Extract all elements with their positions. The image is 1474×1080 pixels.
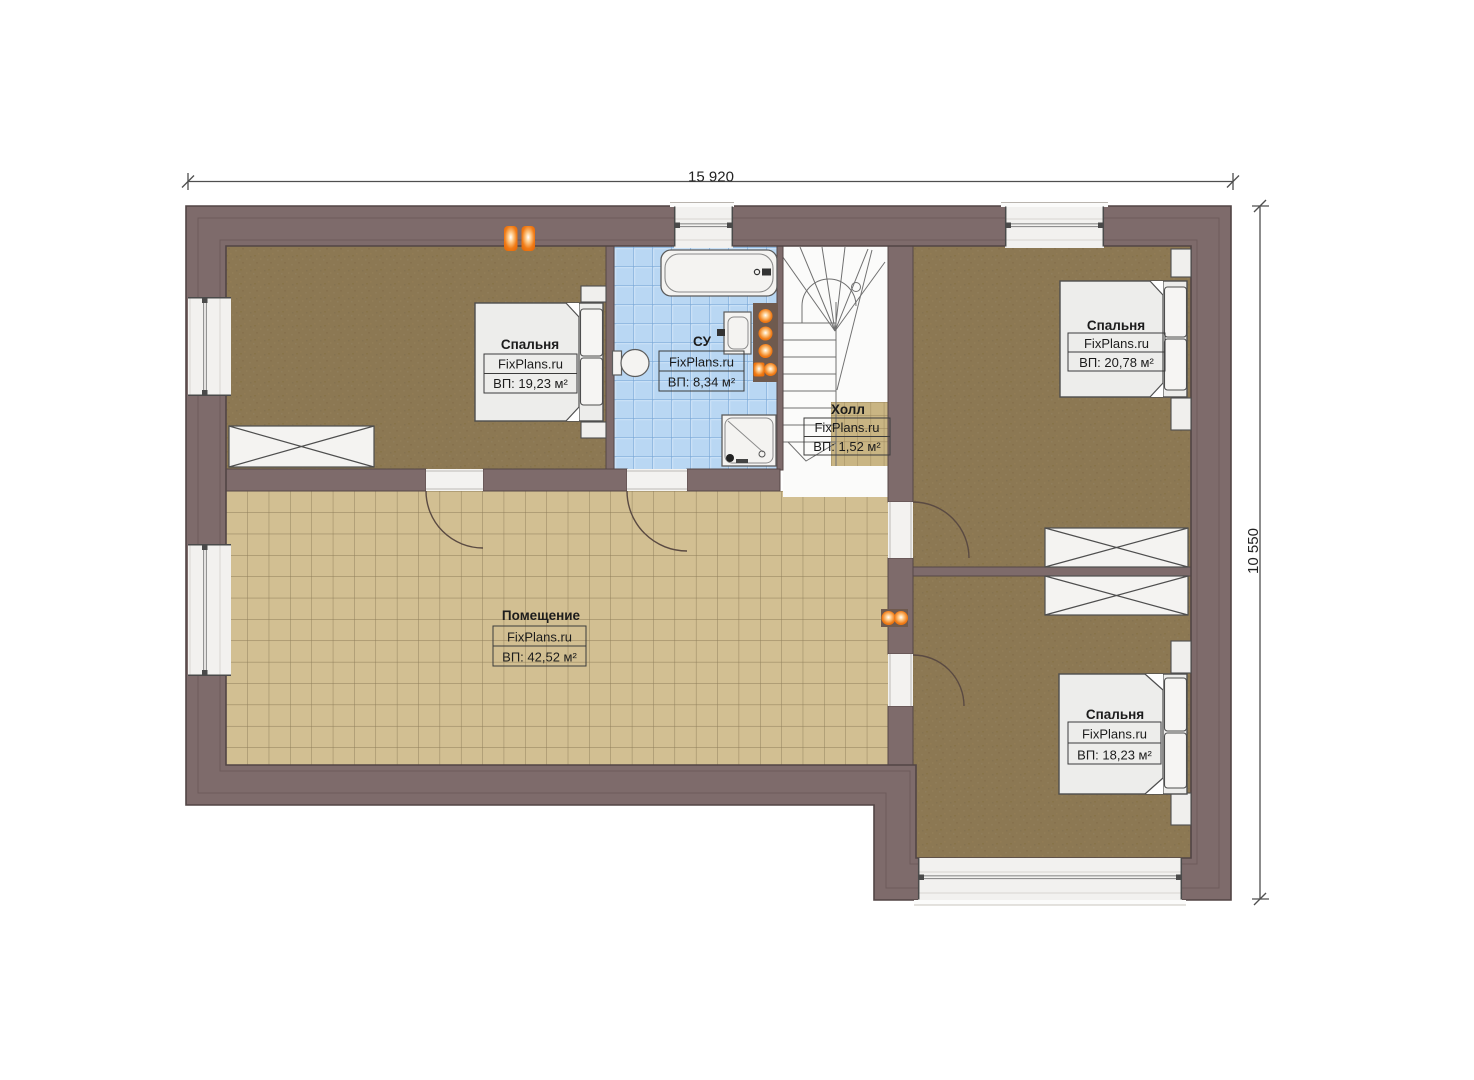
svg-text:Спальня: Спальня: [1086, 707, 1144, 722]
svg-text:15 920: 15 920: [688, 169, 734, 186]
svg-text:Холл: Холл: [831, 402, 865, 417]
svg-text:ВП: 20,78 м²: ВП: 20,78 м²: [1079, 355, 1154, 370]
svg-text:FixPlans.ru: FixPlans.ru: [669, 355, 734, 370]
svg-text:Помещение: Помещение: [502, 608, 581, 623]
svg-text:FixPlans.ru: FixPlans.ru: [1084, 336, 1149, 351]
svg-text:ВП: 18,23 м²: ВП: 18,23 м²: [1077, 748, 1152, 763]
svg-text:FixPlans.ru: FixPlans.ru: [507, 630, 572, 645]
svg-text:10 550: 10 550: [1245, 528, 1262, 574]
svg-text:ВП: 1,52 м²: ВП: 1,52 м²: [813, 439, 881, 454]
svg-text:СУ: СУ: [693, 334, 712, 349]
svg-text:FixPlans.ru: FixPlans.ru: [1082, 727, 1147, 742]
svg-text:ВП: 42,52 м²: ВП: 42,52 м²: [502, 650, 577, 665]
svg-text:FixPlans.ru: FixPlans.ru: [498, 357, 563, 372]
svg-text:ВП: 8,34 м²: ВП: 8,34 м²: [668, 375, 736, 390]
svg-text:FixPlans.ru: FixPlans.ru: [814, 420, 879, 435]
svg-text:Спальня: Спальня: [501, 337, 559, 352]
svg-text:ВП: 19,23 м²: ВП: 19,23 м²: [493, 376, 568, 391]
svg-text:Спальня: Спальня: [1087, 318, 1145, 333]
